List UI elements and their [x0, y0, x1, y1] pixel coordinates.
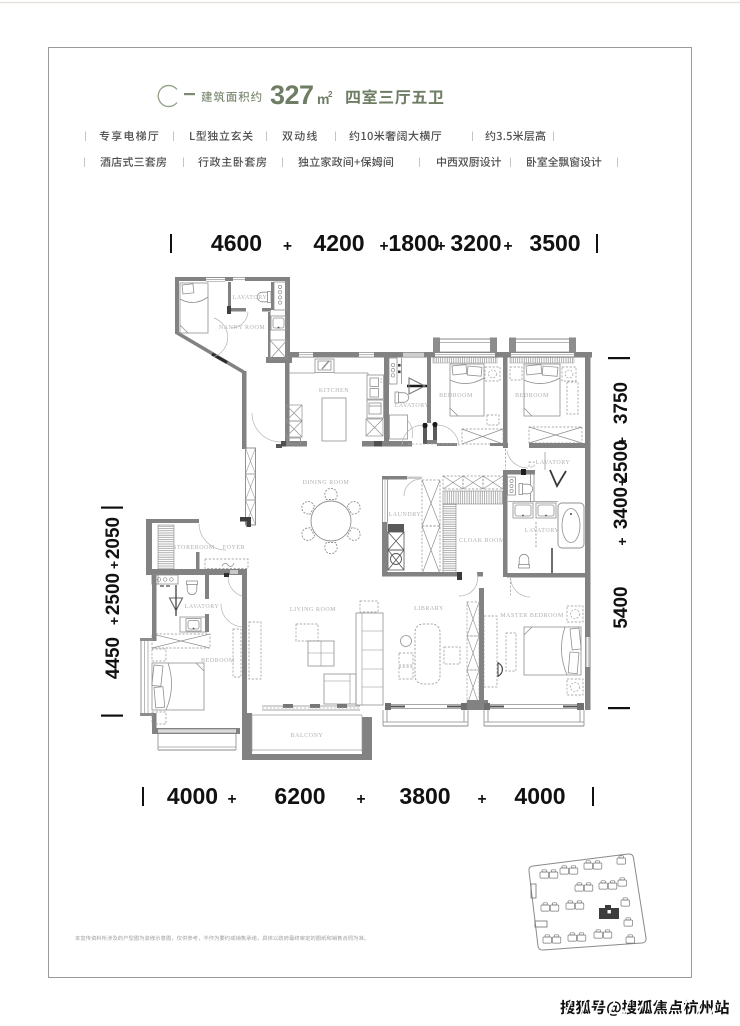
svg-text:+: + [106, 561, 122, 569]
svg-text:4600: 4600 [211, 230, 262, 256]
svg-text:4200: 4200 [313, 230, 364, 256]
svg-text:1800: 1800 [388, 230, 439, 256]
svg-text:5400: 5400 [611, 586, 632, 628]
svg-text:3200: 3200 [450, 230, 501, 256]
svg-text:4450: 4450 [103, 637, 124, 679]
svg-text:LAVATORY: LAVATORY [536, 460, 571, 466]
svg-text:CLOAK ROOM: CLOAK ROOM [459, 538, 505, 544]
svg-text:327: 327 [270, 80, 314, 110]
svg-text:2500: 2500 [611, 440, 632, 482]
svg-text:4000: 4000 [514, 783, 565, 809]
svg-text:3400: 3400 [611, 487, 632, 529]
svg-text:BEDROOM: BEDROOM [515, 393, 549, 399]
svg-text:+: + [106, 617, 122, 625]
svg-text:+: + [503, 238, 512, 255]
svg-text:2: 2 [328, 90, 333, 99]
svg-text:+: + [436, 238, 445, 255]
svg-text:+: + [227, 791, 236, 808]
svg-text:+: + [356, 791, 365, 808]
svg-text:KITCHEN: KITCHEN [319, 388, 349, 394]
svg-text:LIBRARY: LIBRARY [414, 606, 444, 612]
svg-text:+: + [614, 478, 630, 486]
svg-text:6200: 6200 [274, 783, 325, 809]
svg-text:DINING ROOM: DINING ROOM [303, 480, 350, 486]
svg-text:LAVATORY: LAVATORY [185, 604, 220, 610]
svg-text:3800: 3800 [399, 783, 450, 809]
svg-text:LIVING ROOM: LIVING ROOM [290, 607, 336, 613]
svg-text:BALCONY: BALCONY [291, 733, 324, 739]
svg-text:LAVATORY: LAVATORY [395, 403, 430, 409]
svg-text:+: + [477, 791, 486, 808]
svg-text:LAUNDRY: LAUNDRY [389, 512, 422, 518]
svg-text:4000: 4000 [167, 783, 218, 809]
svg-text:+: + [614, 537, 630, 545]
svg-text:3500: 3500 [529, 230, 580, 256]
svg-text:BEDROOM: BEDROOM [201, 658, 235, 664]
svg-text:LAVATORY: LAVATORY [525, 528, 560, 534]
svg-text:FOYER: FOYER [223, 545, 245, 551]
svg-text:2050: 2050 [103, 517, 124, 559]
svg-text:BEDROOM: BEDROOM [439, 393, 473, 399]
svg-text:MASTER BEDROOM: MASTER BEDROOM [500, 613, 564, 619]
svg-text:3750: 3750 [611, 382, 632, 424]
svg-text:STOREROOM: STOREROOM [173, 545, 215, 551]
svg-text:+: + [283, 238, 292, 255]
svg-text:2500: 2500 [103, 573, 124, 615]
svg-text:LAVATORY: LAVATORY [233, 295, 268, 301]
svg-text:+: + [379, 238, 388, 255]
